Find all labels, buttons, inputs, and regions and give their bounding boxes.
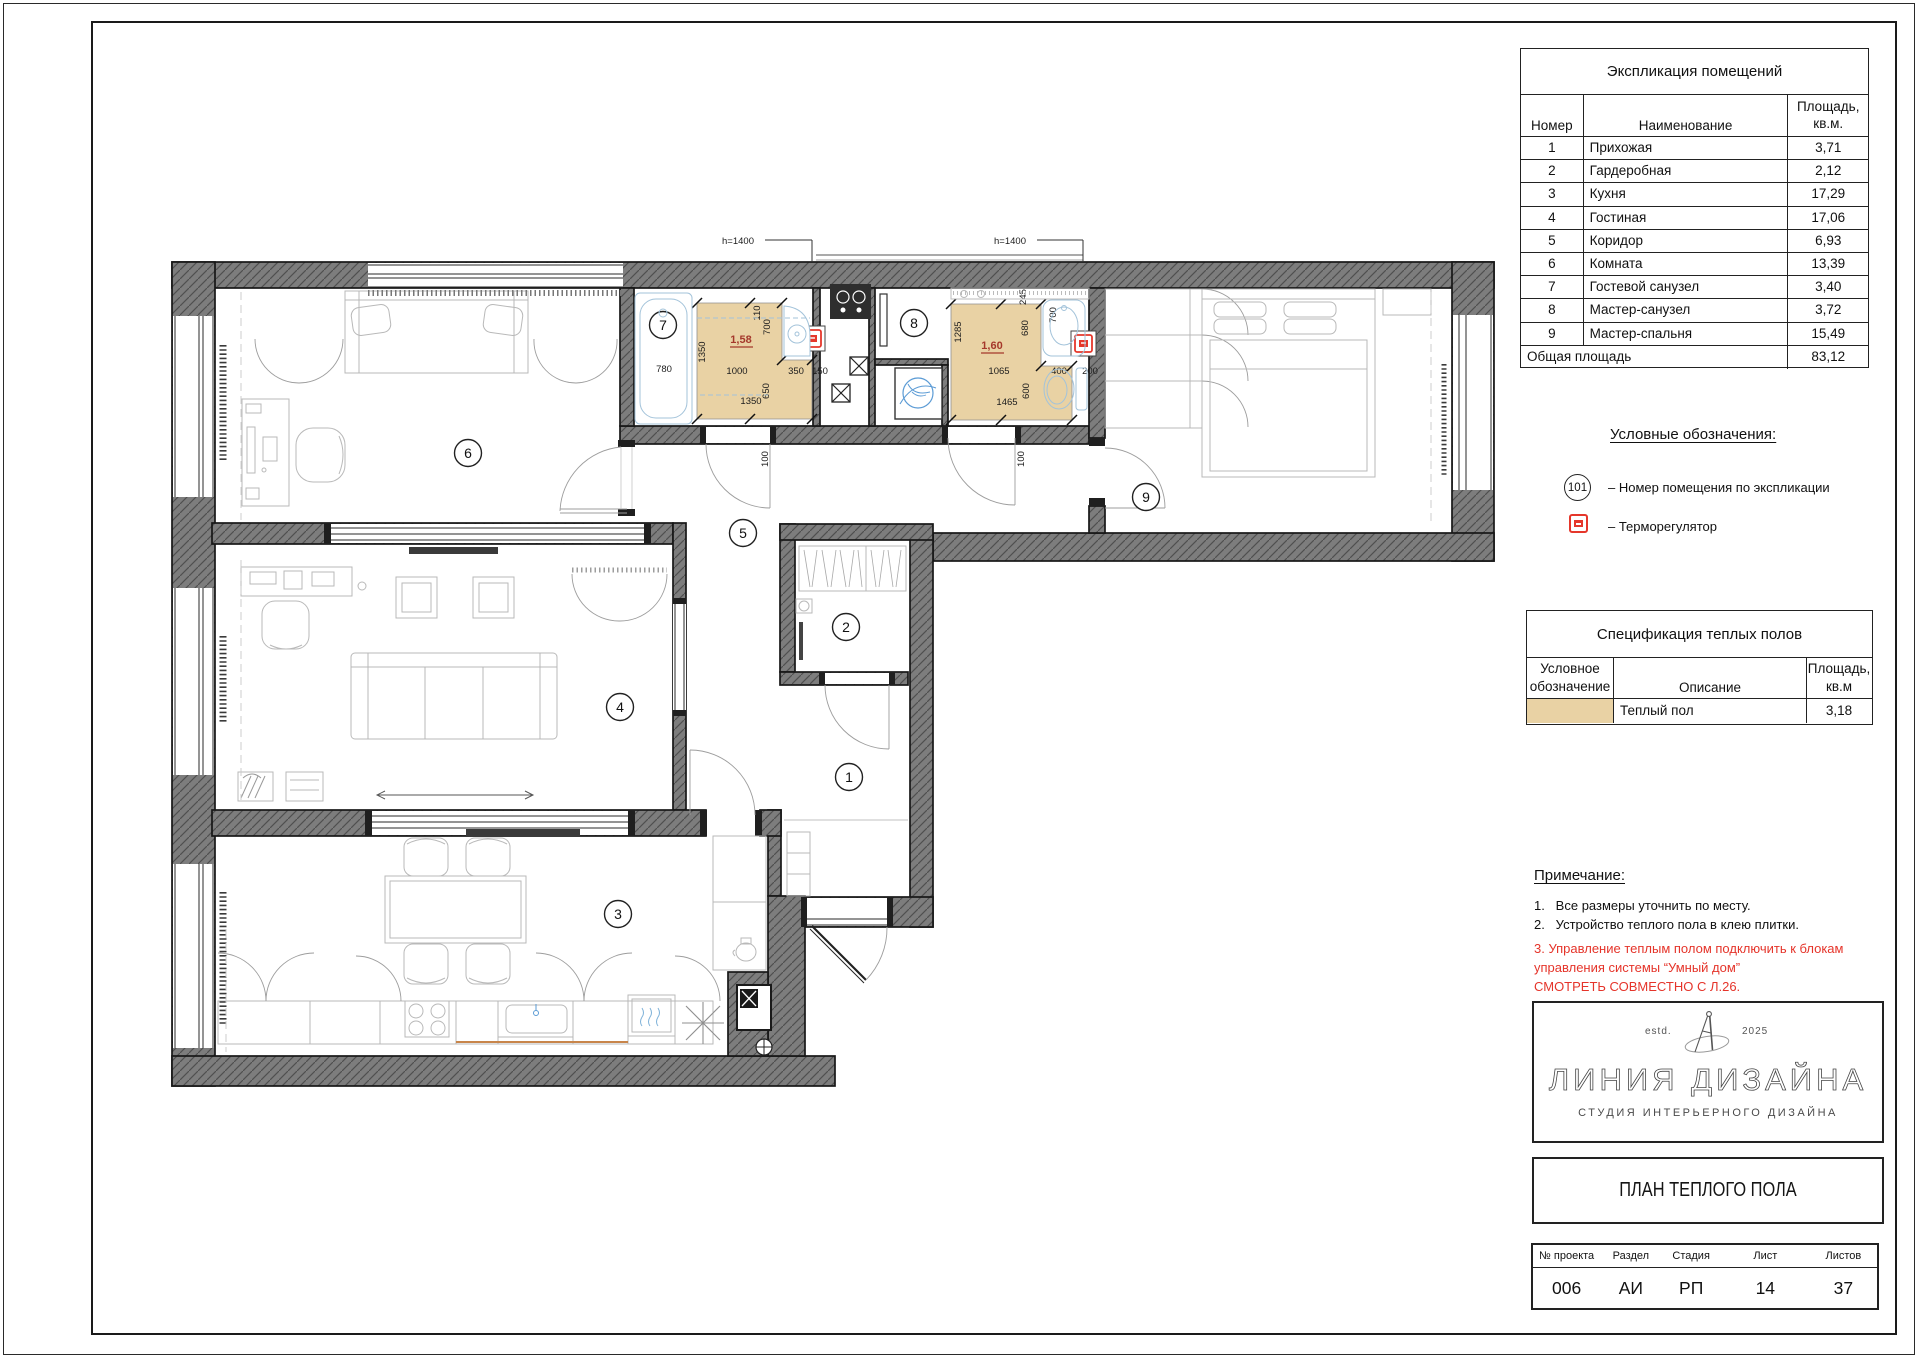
svg-text:150: 150 [812,366,828,377]
svg-text:2: 2 [842,619,850,635]
svg-text:100: 100 [760,451,771,467]
svg-text:245: 245 [1018,289,1029,305]
svg-text:1000: 1000 [726,366,747,377]
svg-text:5: 5 [739,525,747,541]
svg-text:680: 680 [1020,320,1031,336]
svg-text:1: 1 [845,769,853,785]
svg-text:7: 7 [659,317,667,333]
svg-text:1350: 1350 [697,341,708,362]
svg-text:6: 6 [464,445,472,461]
svg-text:h=1400: h=1400 [994,236,1026,247]
svg-text:600: 600 [1021,383,1032,399]
svg-text:650: 650 [761,383,772,399]
svg-text:350: 350 [788,366,804,377]
svg-text:400: 400 [1051,366,1067,377]
svg-text:1,60: 1,60 [981,340,1002,352]
svg-text:9: 9 [1142,489,1150,505]
svg-text:8: 8 [910,315,918,331]
svg-text:1065: 1065 [988,366,1009,377]
svg-text:1350: 1350 [740,396,761,407]
svg-text:4: 4 [616,699,624,715]
svg-text:780: 780 [656,364,672,375]
svg-text:3: 3 [614,906,622,922]
svg-text:1465: 1465 [996,397,1017,408]
svg-text:100: 100 [1016,451,1027,467]
svg-text:1285: 1285 [953,321,964,342]
svg-text:h=1400: h=1400 [722,236,754,247]
svg-text:1,58: 1,58 [730,334,751,346]
svg-text:700: 700 [762,319,773,335]
